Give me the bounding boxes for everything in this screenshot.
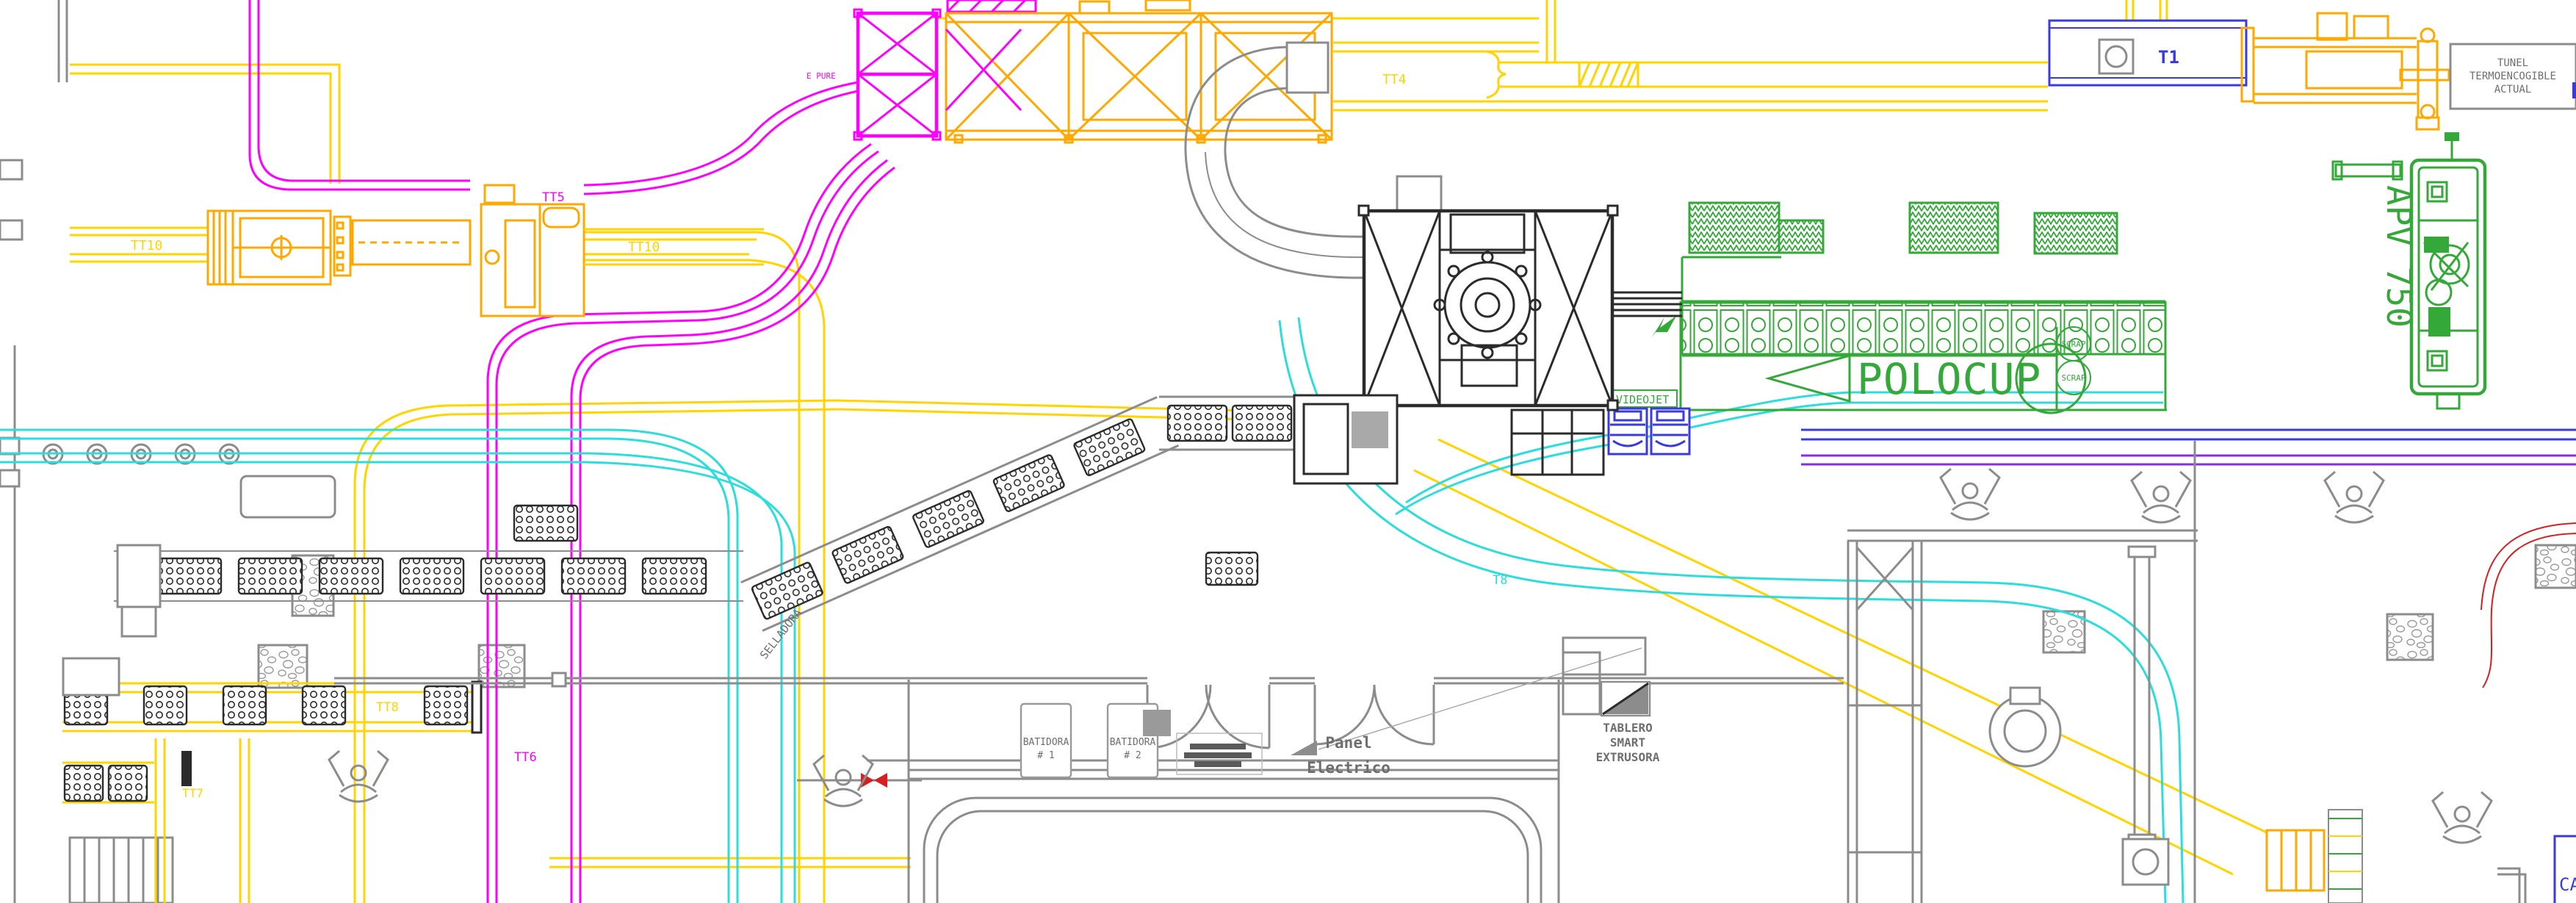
lightning-icon <box>1651 316 1676 338</box>
tt4-label: TT4 <box>1382 72 1407 87</box>
apv750-machine: APV 750 <box>2333 132 2485 409</box>
batidora-2-number: # 2 <box>1124 750 1141 761</box>
panel-arrow-icon <box>1291 741 1317 755</box>
polocup-arrow-icon <box>1769 356 1850 401</box>
tt10-left-label: TT10 <box>131 238 162 253</box>
batidora-2-label: BATIDORA <box>1110 737 1156 748</box>
worker-figure <box>329 751 388 802</box>
walls-left <box>0 0 335 903</box>
ca-box: CA <box>2555 836 2576 903</box>
panel-electrico-label-2: Electrico <box>1307 759 1390 777</box>
polocup-label: POLOCUP <box>1857 354 2041 404</box>
bottom-right-area: CA <box>2267 810 2576 903</box>
t1-conveyor: T1 <box>2049 21 2246 85</box>
panel-electrico-label-1: Panel <box>1325 734 1371 752</box>
batidora-1: BATIDORA # 1 <box>1021 704 1071 777</box>
tt6-label: TT6 <box>514 750 537 765</box>
tt5-label: TT5 <box>542 190 565 205</box>
tunnel-box: TUNEL TERMOENCOGIBLE ACTUAL <box>2450 44 2576 109</box>
tray-conveyor: SELLADORA <box>114 395 1397 661</box>
tablero-smart-extrusora: TABLERO SMART EXTRUSORA <box>1563 638 1660 764</box>
tt10-right-label: TT10 <box>628 240 660 255</box>
scrap-label-2: SCRAP <box>2061 373 2085 383</box>
videojet-label: VIDEOJET <box>1616 393 1669 406</box>
batidora-1-label: BATIDORA <box>1023 737 1069 748</box>
cad-floor-plan: E PURE T8 TT10 TT5 <box>0 0 2576 903</box>
tablero-label-2: SMART <box>1610 735 1645 749</box>
tt7-label: TT7 <box>182 786 203 800</box>
machine-tt5-filler <box>481 185 584 316</box>
videojet-printer-1 <box>1609 409 1647 454</box>
worker-figure <box>2325 472 2384 522</box>
videojet-station: VIDEOJET <box>1609 390 1689 454</box>
tray-line-end-machine <box>118 545 160 636</box>
batidora-2: BATIDORA # 2 <box>1108 704 1171 777</box>
tt4-conveyor <box>1333 0 2167 110</box>
panel-electrico: Panel Electrico <box>1291 648 1642 777</box>
e-pure-label: E PURE <box>807 71 836 81</box>
tt8-label: TT8 <box>376 700 399 715</box>
workers <box>329 469 2492 843</box>
apv750-label: APV 750 <box>2379 185 2419 328</box>
tt10-left-line: TT10 TT5 TT10 <box>70 185 764 316</box>
striped-machine <box>2328 810 2362 903</box>
t8-label: T8 <box>1493 573 1507 588</box>
gray-equipment-block <box>1143 710 1171 736</box>
worker-figure <box>2132 472 2190 522</box>
scrap-label-1: SCRAP <box>2061 339 2085 349</box>
polocup-line: POLOCUP SCRAP SCRAP <box>1651 203 2167 413</box>
orange-machine-complex <box>946 0 1332 143</box>
batidora-1-number: # 1 <box>1037 750 1054 761</box>
blue-purple-lines <box>1801 430 2576 464</box>
worker-figure <box>1941 469 1999 519</box>
tablero-label-3: EXTRUSORA <box>1596 750 1660 764</box>
tunnel-label-2: TERMOENCOGIBLE <box>2469 71 2556 82</box>
tablero-label-1: TABLERO <box>1603 721 1652 735</box>
magenta-routes <box>250 0 895 903</box>
t1-label: T1 <box>2158 47 2179 68</box>
plant-layout-drawing: E PURE T8 TT10 TT5 <box>0 0 2576 903</box>
tunnel-label-3: ACTUAL <box>2494 84 2532 96</box>
worker-figure <box>2433 792 2492 843</box>
machine-former <box>208 211 470 284</box>
videojet-printer-2 <box>1651 409 1689 454</box>
tunnel-label-1: TUNEL <box>2497 57 2528 69</box>
wrapper-machine <box>2242 13 2449 129</box>
denester-machine <box>1294 395 1397 483</box>
ca-label: CA <box>2559 874 2576 895</box>
illegible-note <box>1177 733 1262 774</box>
